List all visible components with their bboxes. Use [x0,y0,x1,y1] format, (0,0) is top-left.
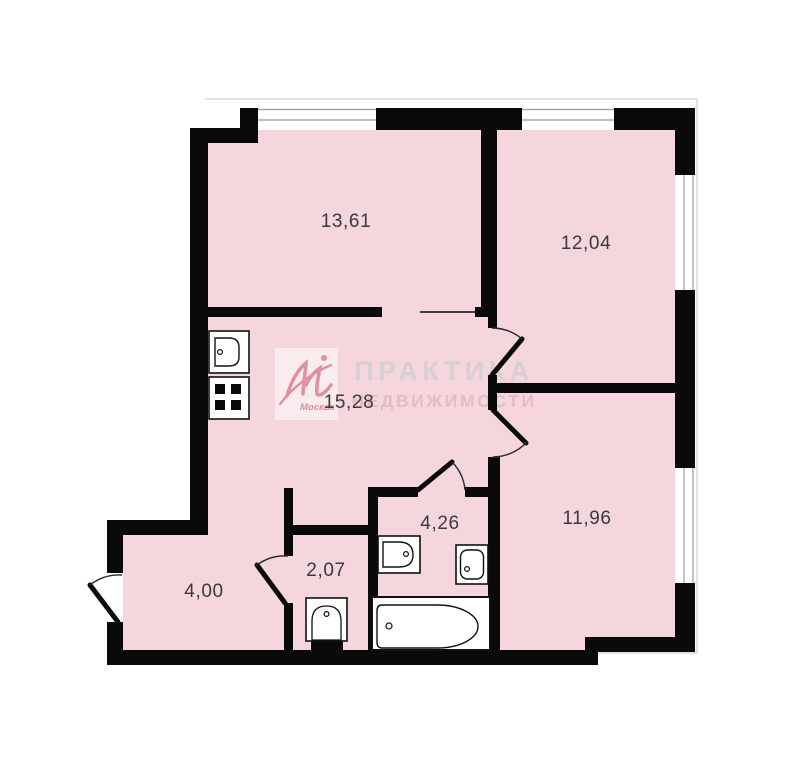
room-label-13-61: 13,61 [321,211,372,232]
window-top-right [522,108,614,130]
wall-left-upper [190,128,208,535]
wall-bath-top-b [465,487,497,497]
wall-wc-left-a [284,488,293,556]
washbasin-right-icon [456,545,488,584]
wall-right-b [675,290,695,468]
wall-wc-left-b [284,603,293,653]
wall-left-step [107,520,208,535]
wall-bottom-left [107,650,598,665]
wall-central-b [488,375,497,410]
room-label-12-04: 12,04 [561,233,612,254]
wall-between-top-rooms [481,128,497,317]
kitchen-sink-icon [209,331,249,373]
wall-top-left-step-up [240,108,258,130]
window-top-left [258,108,376,130]
room-label-2-07: 2,07 [306,560,345,581]
wall-central-a [488,307,497,328]
wall-top-mid [376,108,522,130]
window-right-upper [675,175,695,290]
washbasin-left-icon [378,536,420,573]
toilet-icon [306,598,347,655]
room-label-11-96: 11,96 [562,508,611,529]
wall-right-c [675,583,695,652]
room-label-4-26: 4,26 [420,513,459,534]
wall-left-lower-a [107,535,123,573]
window-right-lower [675,468,695,583]
watermark-logo-dot [321,355,327,361]
wall-between-right-rooms [488,383,675,393]
floor-plan: Москва ПРАКТИКА НЕДВИЖИМОСТИ [0,0,799,768]
bathtub-icon [372,597,490,650]
floor-plan-page: Москва ПРАКТИКА НЕДВИЖИМОСТИ [0,0,799,768]
stove-icon [209,377,249,419]
watermark-brand-line2: НЕДВИЖИМОСТИ [351,391,536,411]
room-label-15-28: 15,28 [324,392,375,413]
room-label-4-00: 4,00 [184,581,223,602]
wall-bath-top-a [368,487,418,497]
wall-wc-top [293,525,368,535]
wall-under-room1-a [208,307,382,317]
wall-right-a [675,108,695,175]
